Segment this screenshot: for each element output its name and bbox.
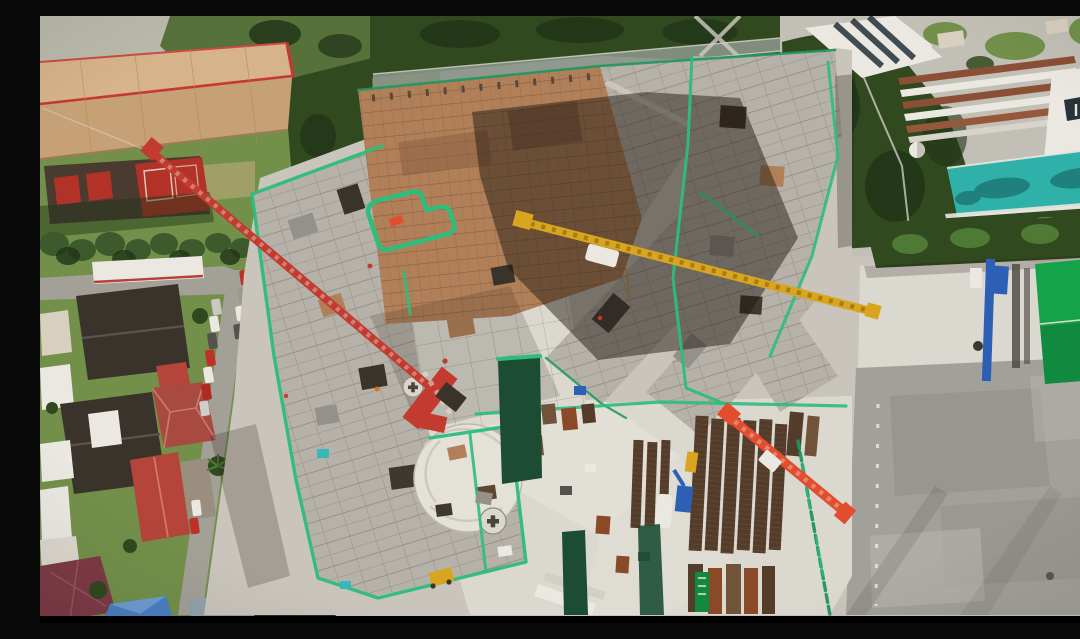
aerial-photo: Aerial drone photo of a high-rise constr…: [40, 16, 1080, 623]
letterbox-bar: [40, 616, 1080, 623]
photo-vignette: [40, 16, 1080, 623]
